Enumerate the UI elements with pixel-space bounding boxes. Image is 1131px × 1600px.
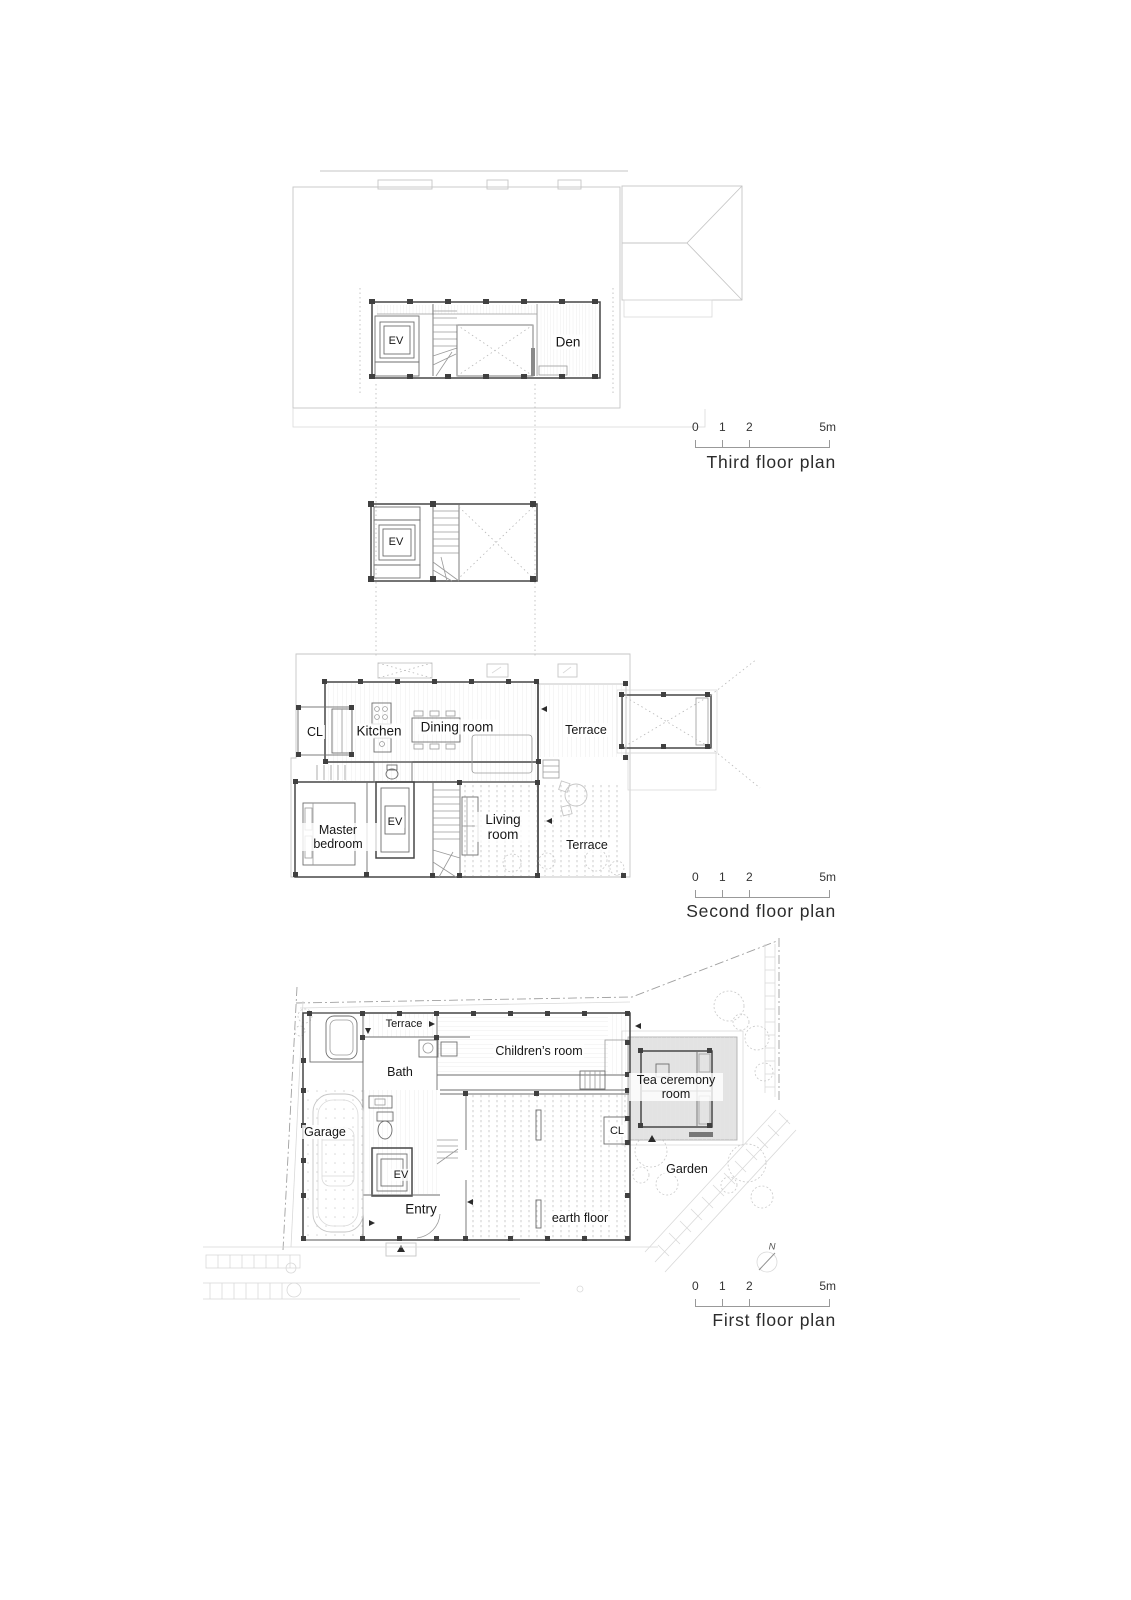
scale-tick-0: 0 bbox=[692, 870, 699, 884]
second-floor-caption: Second floor plan bbox=[616, 901, 836, 922]
first-floor-scale-bar: 0 1 2 5m bbox=[695, 1279, 830, 1307]
scale-tick-5m: 5m bbox=[819, 420, 836, 434]
scale-tick-2: 2 bbox=[746, 420, 753, 434]
room-label-terrace-upper: Terrace bbox=[563, 723, 609, 737]
scale-tick-5m: 5m bbox=[819, 1279, 836, 1293]
room-label-earth-floor: earth floor bbox=[550, 1211, 610, 1225]
room-label-childrens-room: Children’s room bbox=[493, 1044, 584, 1058]
scale-tick-1: 1 bbox=[719, 420, 726, 434]
first-floor-caption: First floor plan bbox=[616, 1310, 836, 1331]
scale-tick-5m: 5m bbox=[819, 870, 836, 884]
scale-tick-0: 0 bbox=[692, 420, 699, 434]
third-floor-caption: Third floor plan bbox=[616, 452, 836, 473]
room-label-dining-room: Dining room bbox=[419, 719, 496, 734]
room-label-terrace-lower: Terrace bbox=[564, 838, 610, 852]
room-label-ev-1f: EV bbox=[392, 1169, 411, 1181]
scale-tick-2: 2 bbox=[746, 870, 753, 884]
floor-plan-drawing bbox=[0, 0, 1131, 1600]
room-label-cl-1f: CL bbox=[608, 1125, 626, 1137]
room-label-bath: Bath bbox=[385, 1065, 415, 1079]
room-label-ev-3f: EV bbox=[387, 335, 406, 347]
floor-plan-sheet: EV Den EV CL Kitchen Dining room Terrace… bbox=[0, 0, 1131, 1600]
room-label-living-room: Living room bbox=[475, 812, 531, 842]
scale-tick-0: 0 bbox=[692, 1279, 699, 1293]
room-label-entry: Entry bbox=[403, 1201, 439, 1216]
room-label-kitchen: Kitchen bbox=[354, 723, 403, 738]
room-label-cl-2f: CL bbox=[305, 725, 325, 739]
third-floor-drawing bbox=[293, 171, 742, 656]
north-arrow-icon bbox=[757, 1252, 777, 1272]
room-label-ev-loft: EV bbox=[387, 536, 406, 548]
room-label-tea-ceremony-room: Tea ceremony room bbox=[629, 1073, 723, 1101]
room-label-garage: Garage bbox=[302, 1125, 348, 1139]
room-label-garden: Garden bbox=[664, 1162, 710, 1176]
room-label-den: Den bbox=[554, 334, 583, 349]
room-label-ev-2f: EV bbox=[386, 816, 405, 828]
room-label-terrace-1f: Terrace bbox=[384, 1018, 425, 1030]
second-floor-scale-bar: 0 1 2 5m bbox=[695, 870, 830, 898]
scale-tick-1: 1 bbox=[719, 1279, 726, 1293]
scale-tick-2: 2 bbox=[746, 1279, 753, 1293]
first-floor-drawing bbox=[203, 938, 796, 1299]
scale-tick-1: 1 bbox=[719, 870, 726, 884]
compass-north-label: N bbox=[767, 1243, 778, 1254]
room-label-master-bedroom: Master bedroom bbox=[299, 823, 377, 851]
third-floor-scale-bar: 0 1 2 5m bbox=[695, 420, 830, 448]
